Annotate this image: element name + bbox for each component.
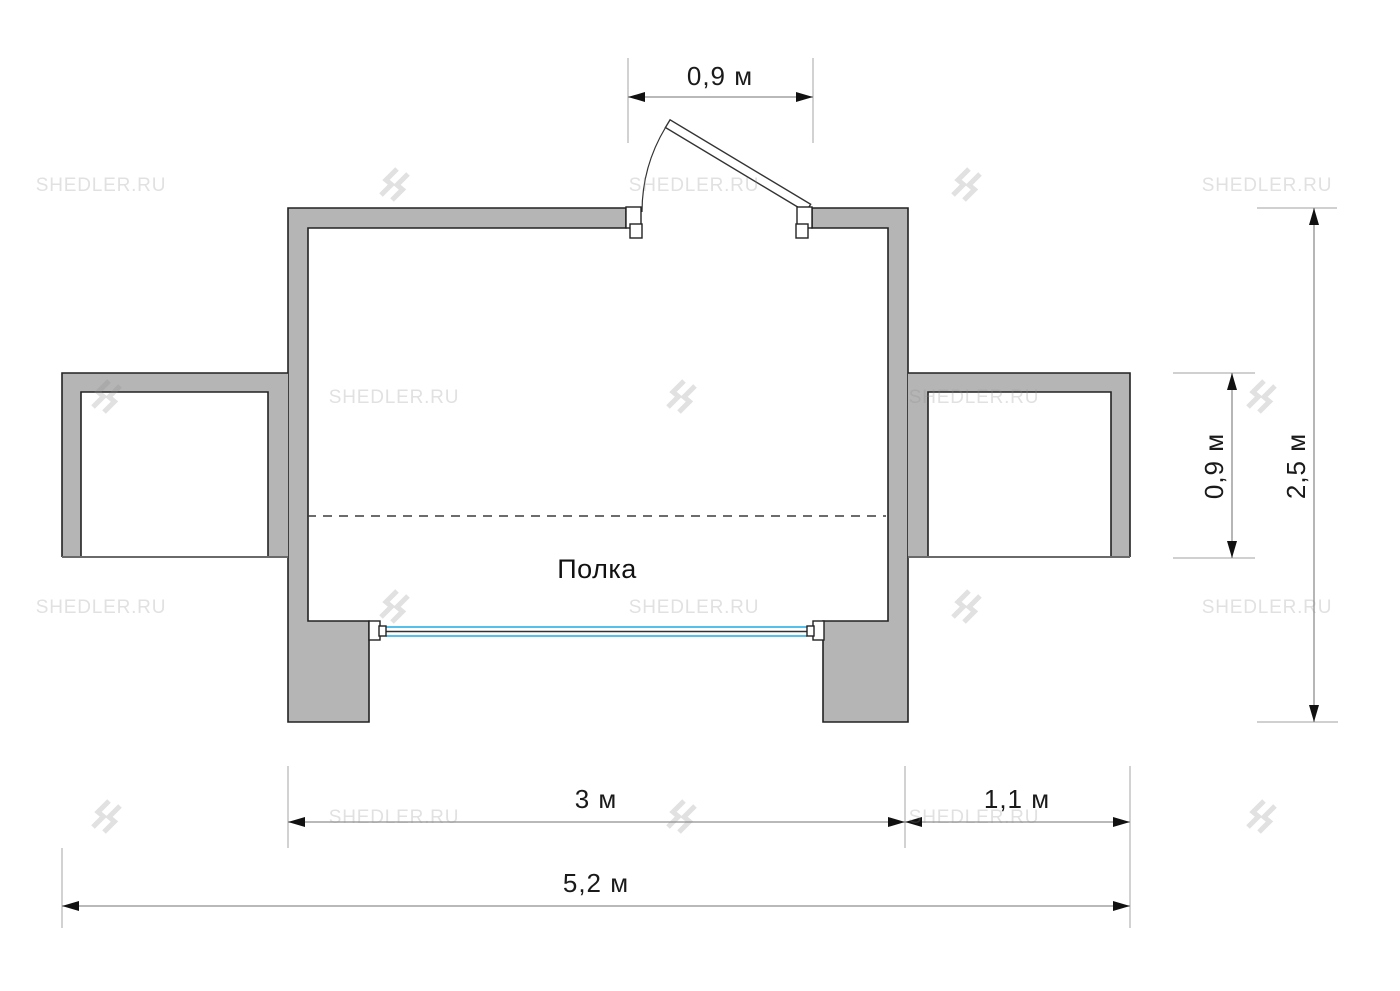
watermark-text: SHEDLER.RU	[329, 387, 459, 408]
dim-overall-width: 5,2 м	[62, 848, 1130, 928]
watermark-text: SHEDLER.RU	[629, 597, 759, 618]
dim-main-room-width-label: 3 м	[575, 784, 618, 814]
shedler-logo-icon	[668, 801, 695, 832]
shedler-logo-icon	[381, 591, 408, 622]
watermark-text: SHEDLER.RU	[629, 175, 759, 196]
door-swing-arc	[642, 128, 666, 213]
main-wall-right	[812, 208, 908, 722]
arrow-right	[796, 92, 813, 102]
arrow-down	[1227, 541, 1237, 558]
shelf-label: Полка	[557, 554, 637, 584]
watermark-text: SHEDLER.RU	[909, 387, 1039, 408]
window	[369, 621, 824, 640]
dim-right-extension-width: 1,1 м	[905, 766, 1130, 928]
door-stop-right	[796, 224, 808, 238]
shedler-logo-icon	[953, 169, 980, 200]
shedler-logo-icon	[1248, 381, 1275, 412]
watermark-layer: SHEDLER.RU SHEDLER.RU SHEDLER.RU SHEDLER…	[36, 169, 1332, 832]
arrow-up	[1309, 208, 1319, 225]
arrow-left	[288, 817, 305, 827]
watermark-text: SHEDLER.RU	[329, 807, 459, 828]
dim-overall-width-label: 5,2 м	[563, 868, 629, 898]
arrow-left	[628, 92, 645, 102]
arrow-right	[1113, 901, 1130, 911]
shedler-logo-icon	[93, 801, 120, 832]
shedler-logo-icon	[381, 169, 408, 200]
dim-door-width: 0,9 м	[628, 58, 813, 143]
door-leaf	[665, 120, 810, 212]
shedler-logo-icon	[1248, 801, 1275, 832]
window-stop-left	[379, 626, 386, 636]
arrow-right	[888, 817, 905, 827]
floor-plan-canvas: Полка 0,9 м 0,9 м 2,5 м	[0, 0, 1400, 991]
main-wall-left	[288, 208, 626, 722]
walls	[62, 208, 1130, 722]
dim-overall-depth-label: 2,5 м	[1281, 433, 1311, 499]
dim-extension-depth-label: 0,9 м	[1199, 433, 1229, 499]
arrow-left	[62, 901, 79, 911]
door-stop-left	[630, 224, 642, 238]
arrow-right	[1113, 817, 1130, 827]
watermark-text: SHEDLER.RU	[1202, 175, 1332, 196]
dim-door-width-label: 0,9 м	[687, 61, 753, 91]
arrow-up	[1227, 373, 1237, 390]
watermark-text: SHEDLER.RU	[909, 807, 1039, 828]
dim-overall-depth: 2,5 м	[1257, 208, 1338, 722]
watermark-text: SHEDLER.RU	[36, 175, 166, 196]
window-stop-right	[807, 626, 814, 636]
watermark-text: SHEDLER.RU	[36, 597, 166, 618]
dim-extension-depth: 0,9 м	[1173, 373, 1255, 558]
floor-plan-svg: Полка 0,9 м 0,9 м 2,5 м	[0, 0, 1400, 991]
watermark-text: SHEDLER.RU	[1202, 597, 1332, 618]
shedler-logo-icon	[953, 591, 980, 622]
arrow-down	[1309, 705, 1319, 722]
shedler-logo-icon	[668, 381, 695, 412]
